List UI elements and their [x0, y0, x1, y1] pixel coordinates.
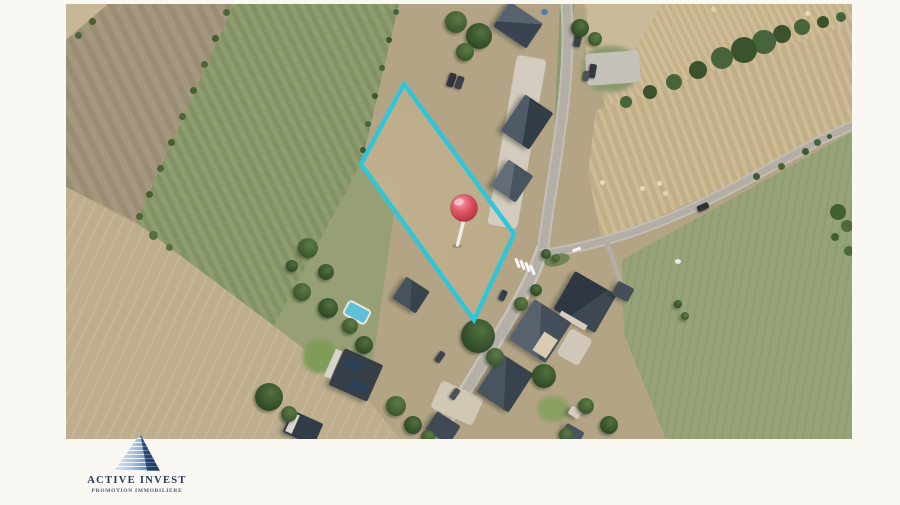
map-overlay — [66, 4, 852, 439]
location-pin-icon — [451, 195, 478, 222]
pin-stick — [458, 220, 464, 245]
property-boundary — [361, 84, 514, 320]
logo-tagline: PROMOTION IMMOBILIERE — [58, 488, 216, 494]
building-logo-icon — [114, 434, 160, 471]
company-logo: ACTIVE INVEST PROMOTION IMMOBILIERE — [58, 434, 216, 494]
page-background: { "page": { "background": "#faf8f2" }, "… — [0, 0, 900, 505]
aerial-photo — [66, 4, 852, 439]
logo-name: ACTIVE INVEST — [58, 475, 216, 486]
